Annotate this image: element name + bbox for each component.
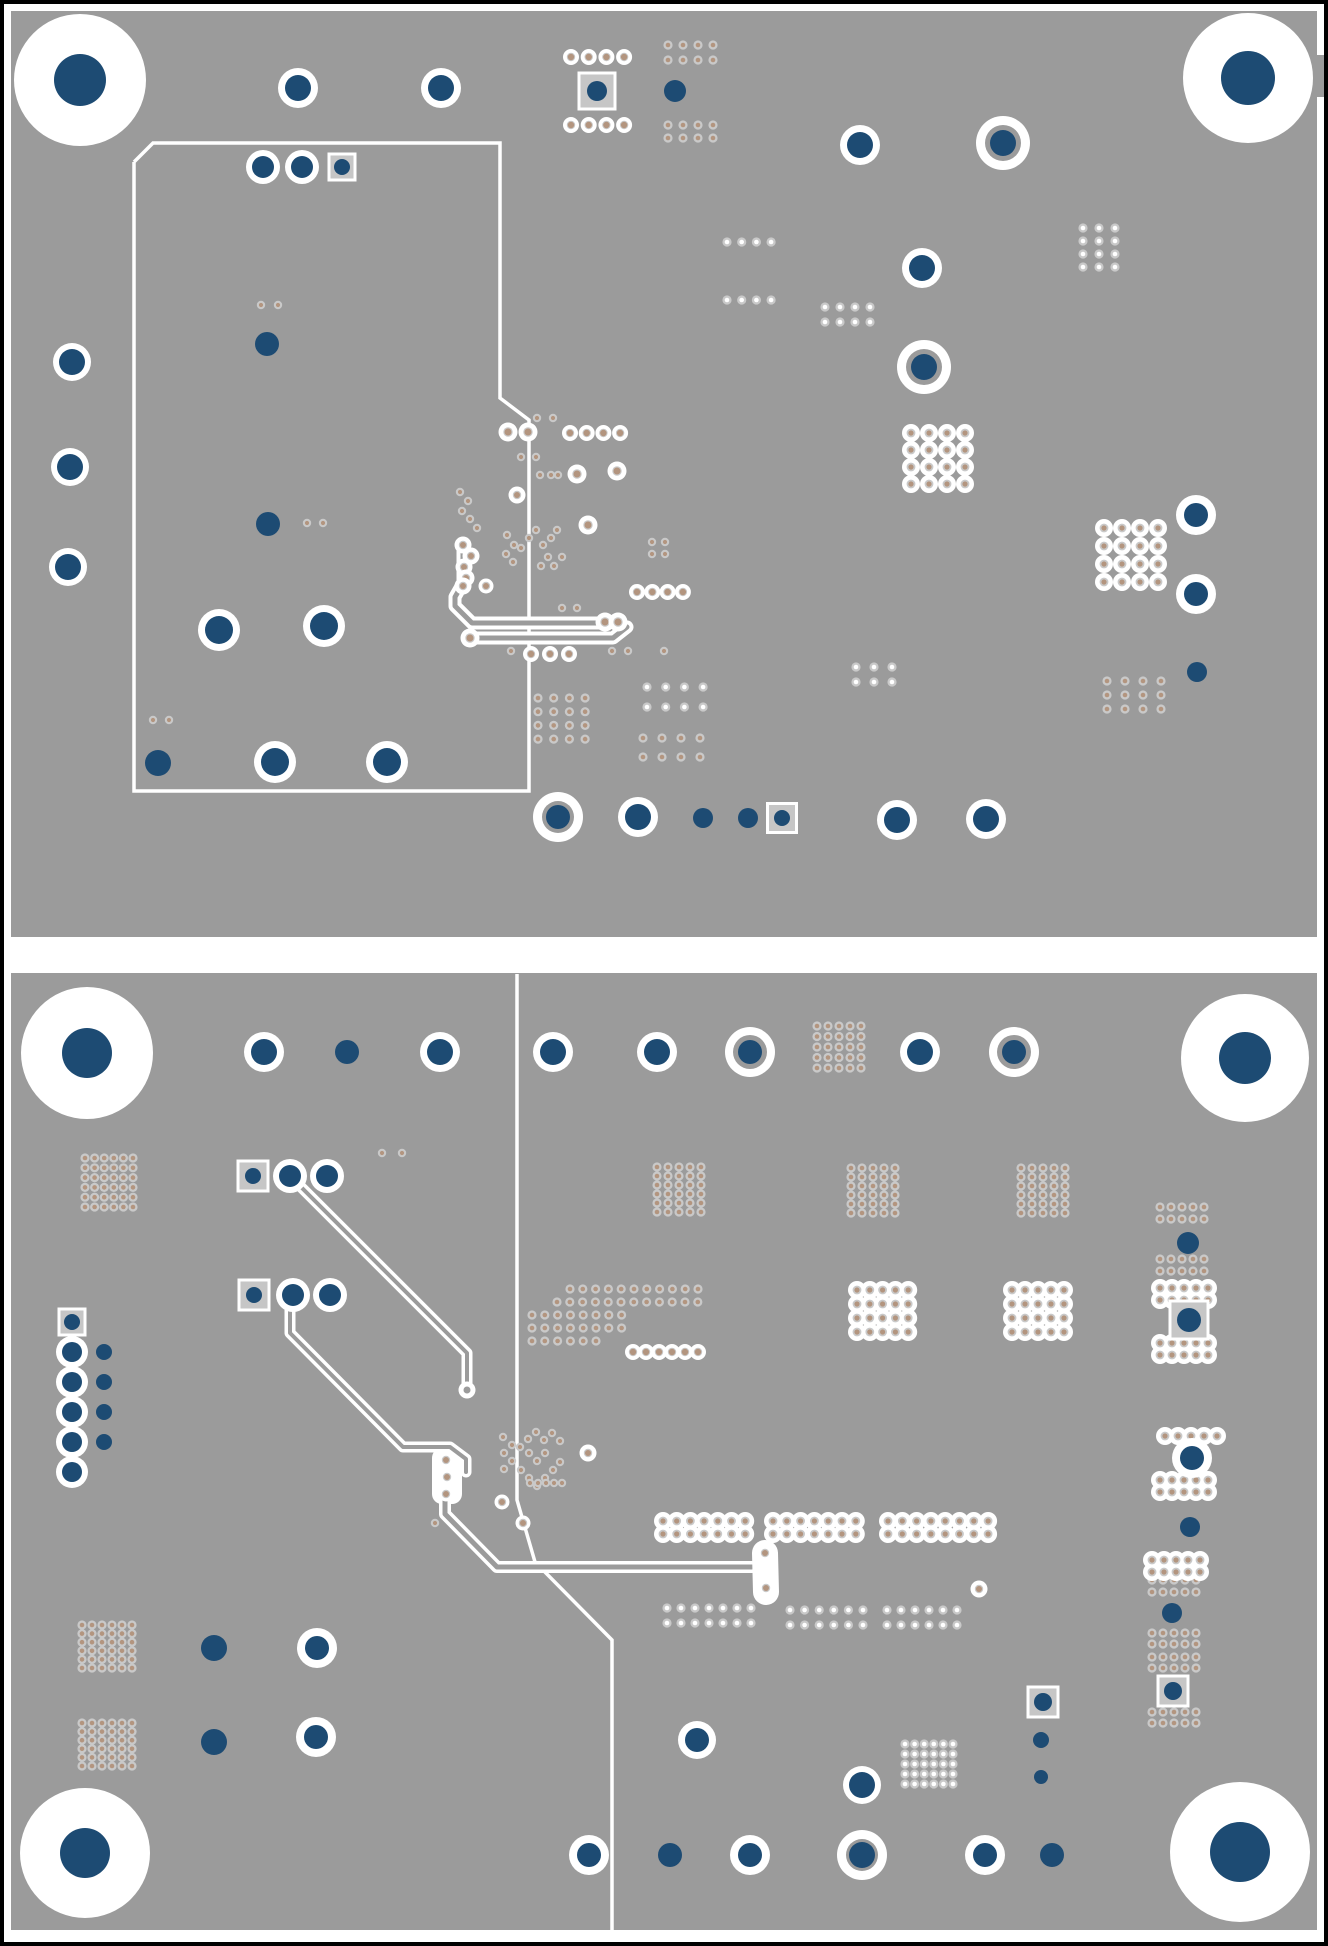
inner-layer-top — [11, 11, 1328, 937]
pcb-layer-screenshot — [0, 0, 1328, 1946]
pcb-two-layer-image — [0, 0, 1328, 1946]
inner-layer-bottom — [11, 973, 1317, 1930]
